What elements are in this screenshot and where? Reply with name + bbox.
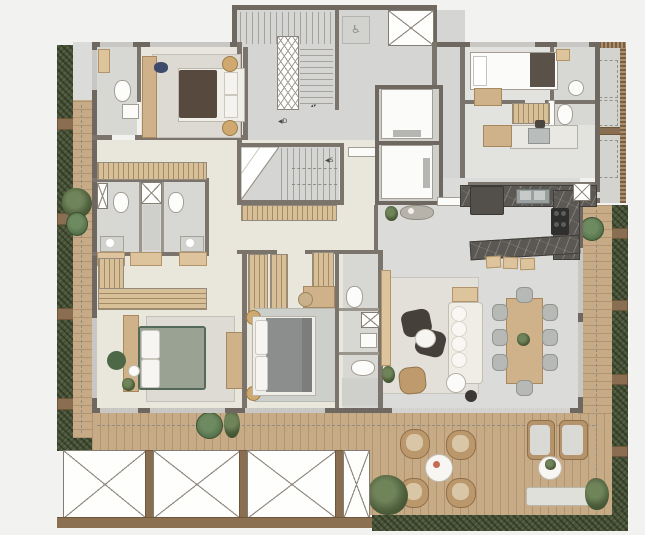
partition (339, 352, 379, 355)
hedge-left (57, 45, 74, 438)
chair-cushion (406, 434, 423, 451)
stair-direction-icon: ◀S (325, 158, 333, 164)
toilet (346, 286, 363, 308)
shaft-x-icon (361, 312, 380, 328)
wall (340, 143, 344, 205)
plant-icon (545, 459, 556, 470)
wall (375, 85, 443, 89)
window (578, 322, 583, 397)
elevator-door-1 (393, 130, 421, 137)
wall (375, 85, 379, 205)
burner (554, 211, 559, 216)
shelf (556, 49, 570, 61)
plant-icon (224, 410, 240, 438)
deck-projection-line (81, 105, 82, 433)
bed-duvet-fold (302, 318, 312, 392)
bar-stool (486, 255, 502, 268)
dining-chair (542, 304, 558, 321)
pillow (141, 330, 160, 359)
desk-chair (298, 292, 313, 307)
sink (360, 333, 377, 348)
sink-basin (186, 239, 194, 247)
void-bay-x-icon (63, 450, 147, 519)
blue-stool (154, 62, 168, 73)
sink-basin (520, 191, 531, 200)
dining-chair (542, 354, 558, 371)
window (245, 408, 325, 413)
bar-stool (520, 258, 535, 271)
laundry-sink (528, 128, 550, 144)
chair-cushion (452, 483, 469, 500)
wall (439, 85, 443, 205)
closet (270, 254, 288, 312)
pillow (141, 359, 160, 388)
dining-chair (492, 354, 508, 371)
shrub (585, 478, 609, 510)
sofa-pillow (451, 321, 467, 337)
wall (137, 47, 141, 102)
wall (595, 42, 600, 192)
lounge-cushion (562, 425, 583, 455)
wall (242, 254, 247, 408)
green-pouf (580, 217, 604, 241)
bay-base-beam (57, 517, 372, 528)
stair-projection (292, 184, 337, 185)
window (470, 42, 535, 47)
vanity-cabinet (179, 252, 207, 266)
stair-flight-lower (281, 148, 337, 200)
sink (122, 104, 139, 119)
wall (374, 205, 378, 254)
floor-lamp-shade (446, 373, 466, 393)
burner (561, 222, 566, 227)
laundry-cabinet (483, 125, 512, 147)
toilet (113, 192, 129, 213)
ac-unit-outline (599, 100, 618, 126)
closet (312, 252, 334, 287)
shaft-x-icon (97, 183, 108, 209)
round-sink (568, 80, 584, 96)
dining-chair (492, 329, 508, 346)
floor-plan-canvas: ♿ ◀D ▴▾ ◀S (0, 0, 645, 535)
nightstand (222, 120, 238, 136)
shaft-x-icon (141, 182, 162, 204)
wicker-chair (398, 366, 428, 396)
window (92, 318, 97, 398)
vanity-cabinet (130, 252, 162, 266)
floor-lamp-base (465, 390, 477, 402)
toilet (557, 104, 573, 125)
pillow (255, 320, 268, 355)
closet (248, 254, 268, 312)
bedside-cabinet (474, 88, 502, 106)
plant-icon (517, 333, 530, 346)
appliance (535, 120, 545, 128)
sofa-pillow (451, 352, 467, 368)
shower (342, 378, 378, 406)
wall (335, 254, 339, 408)
wall (375, 201, 443, 205)
wall (335, 10, 339, 110)
walkin-closet (98, 288, 207, 310)
window (100, 42, 133, 47)
toilet (114, 80, 131, 102)
corridor-closet (97, 162, 207, 180)
refrigerator (470, 186, 504, 215)
dining-chair (516, 287, 533, 303)
window (150, 42, 230, 47)
pillow (224, 72, 238, 95)
toilet (351, 360, 375, 376)
side-balcony-slab (73, 42, 93, 100)
dining-chair (492, 304, 508, 321)
potted-plant (66, 212, 88, 236)
wall (205, 178, 209, 256)
sofa-pillow (451, 336, 467, 352)
corridor-closet (241, 205, 337, 221)
lounge-cushion (530, 425, 550, 455)
coffee-table (415, 329, 436, 348)
elevator-door-2 (423, 158, 430, 188)
window (100, 408, 138, 413)
louver-screen (620, 47, 626, 203)
wall (232, 5, 237, 45)
wall (375, 141, 443, 145)
plant-icon (382, 366, 395, 383)
void-bay-x-icon (247, 450, 337, 519)
shower (143, 205, 160, 250)
ac-unit-outline (599, 60, 618, 98)
shrub (368, 475, 408, 515)
pillow (473, 56, 487, 86)
window (150, 408, 225, 413)
side-table (128, 365, 140, 377)
shelf (348, 147, 377, 157)
void-bay-x-icon (153, 450, 241, 519)
decor (433, 461, 440, 468)
shaft-x-icon (573, 183, 591, 201)
single-bed-blanket (530, 53, 555, 87)
decor (408, 208, 414, 214)
pillow (224, 95, 238, 118)
stair-rail (277, 36, 299, 110)
bar-stool (503, 257, 518, 270)
ac-unit-outline (599, 140, 618, 178)
wall (460, 47, 465, 178)
bath-shelf (98, 49, 110, 73)
window (92, 50, 97, 90)
sofa-pillow (451, 306, 467, 322)
deck-left (73, 100, 93, 438)
pillow (255, 356, 268, 391)
dining-chair (542, 329, 558, 346)
partition (339, 308, 379, 311)
window (557, 42, 589, 47)
stair-projection (292, 168, 337, 169)
toilet (168, 192, 184, 213)
side-table (452, 287, 478, 302)
outdoor-bench (526, 487, 590, 506)
stair-direction-icon: ◀D (278, 119, 287, 125)
sink-basin (534, 191, 545, 200)
bed-blanket (179, 70, 217, 118)
sliding-door (392, 408, 570, 413)
console-table (400, 205, 434, 220)
sink-basin (106, 239, 114, 247)
burner (561, 211, 566, 216)
dining-chair (516, 380, 533, 396)
wall (92, 135, 112, 140)
stair-flight-side (300, 46, 333, 104)
green-pouf (196, 412, 223, 439)
deck-projection-line (97, 425, 595, 426)
elevator-call-icon: ▴▾ (311, 103, 316, 109)
wheelchair-icon: ♿ (342, 16, 370, 44)
burner (554, 222, 559, 227)
terrace-table (425, 454, 453, 482)
nightstand (222, 56, 238, 72)
shaft-x-icon (388, 10, 434, 46)
sideboard (381, 270, 391, 366)
accent-chair (107, 351, 126, 370)
plant-icon (385, 206, 398, 221)
wall (432, 42, 437, 85)
stair-void-triangle (241, 147, 279, 200)
deck-projection-line (596, 210, 597, 506)
plant-icon (122, 378, 135, 391)
chair-cushion (452, 435, 469, 452)
void-bay-x-icon (343, 450, 370, 519)
